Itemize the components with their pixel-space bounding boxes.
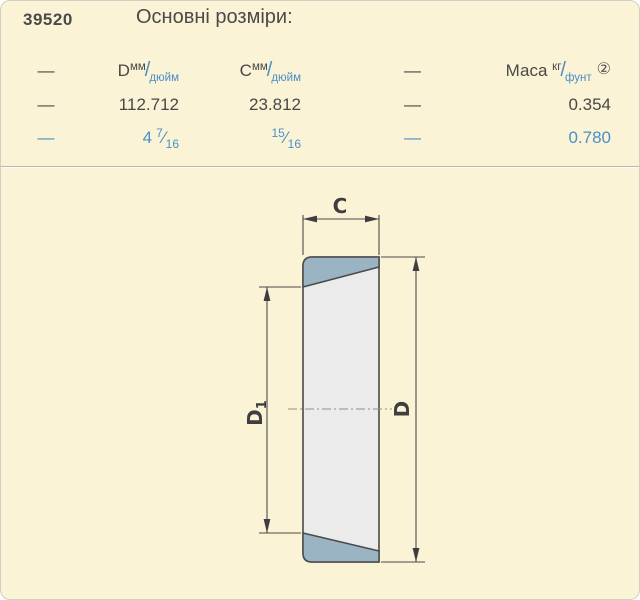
- dim-c-label: C: [333, 194, 348, 218]
- dim-c-arrow-right: [365, 216, 379, 223]
- dim-d-label: D: [390, 401, 414, 418]
- dim-d1-arrow-up: [264, 287, 271, 301]
- dim-d1-label-main: D: [243, 409, 267, 426]
- dim-c-arrow-left: [303, 216, 317, 223]
- bearing-cup-drawing: C D D1: [1, 1, 640, 600]
- dim-d1-arrow-down: [264, 519, 271, 533]
- datasheet-page: 39520 Основні розміри: — Dмм/дюйм Cмм/дю…: [0, 0, 640, 600]
- dim-d-arrow-up: [413, 257, 420, 271]
- dim-d-arrow-down: [413, 548, 420, 562]
- dim-d1-label-sub: 1: [255, 400, 270, 409]
- dim-d1-label: D1: [243, 400, 270, 426]
